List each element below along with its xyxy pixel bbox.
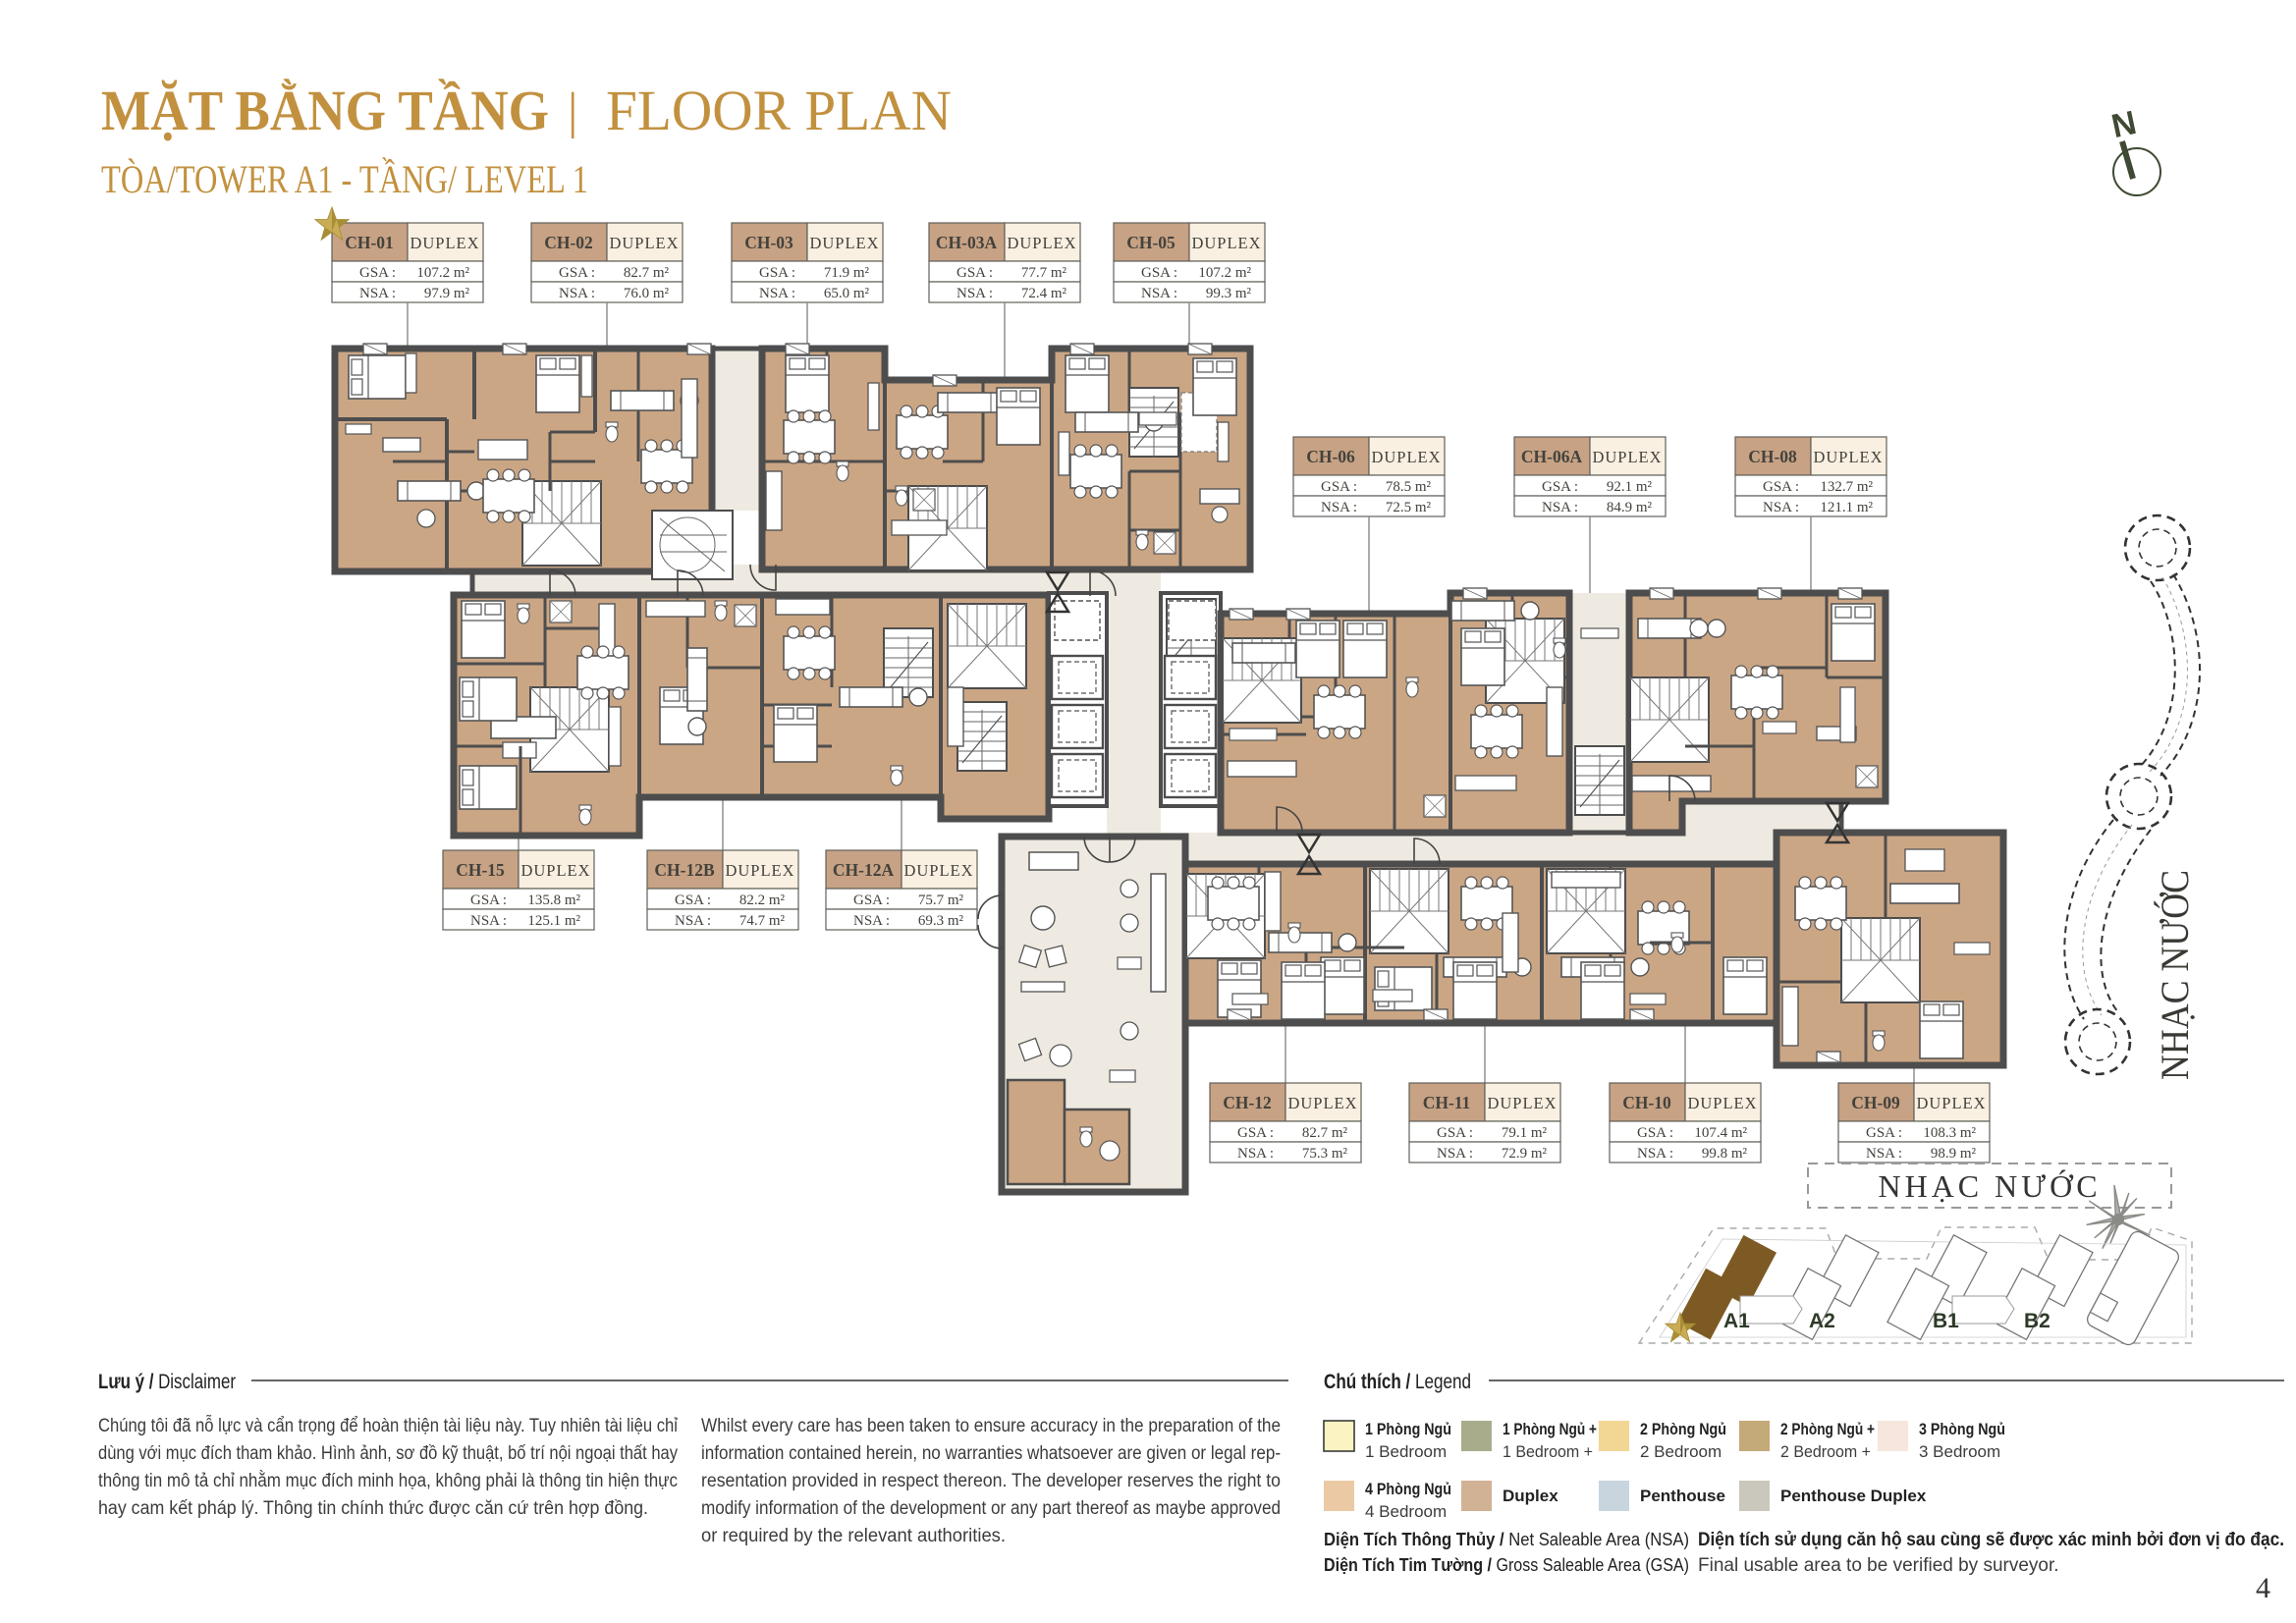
svg-text:2 Bedroom: 2 Bedroom [1640,1442,1722,1461]
svg-text:Chú thích / Legend: Chú thích / Legend [1324,1371,1471,1393]
svg-text:DUPLEX: DUPLEX [410,234,479,252]
svg-text:CH-03A: CH-03A [936,233,998,252]
svg-text:DUPLEX: DUPLEX [1813,448,1883,466]
svg-text:108.3 m²: 108.3 m² [1923,1125,1976,1141]
svg-text:4 Bedroom: 4 Bedroom [1365,1502,1447,1521]
svg-text:FLOOR PLAN: FLOOR PLAN [606,79,952,142]
svg-text:76.0 m²: 76.0 m² [624,286,670,301]
svg-text:98.9 m²: 98.9 m² [1931,1146,1977,1162]
svg-text:84.9 m²: 84.9 m² [1607,500,1653,515]
svg-text:NSA :: NSA : [559,286,595,301]
svg-text:GSA :: GSA : [1542,479,1578,495]
svg-text:Penthouse Duplex: Penthouse Duplex [1780,1487,1927,1505]
svg-text:B2: B2 [2024,1310,2050,1332]
svg-text:DUPLEX: DUPLEX [1687,1094,1757,1112]
svg-text:NSA :: NSA : [1866,1146,1902,1162]
svg-text:132.7 m²: 132.7 m² [1820,479,1873,495]
svg-text:NSA :: NSA : [470,913,507,929]
svg-text:79.1 m²: 79.1 m² [1502,1125,1548,1141]
svg-text:GSA :: GSA : [559,265,595,281]
svg-text:DUPLEX: DUPLEX [725,861,794,880]
svg-text:NSA :: NSA : [1437,1146,1473,1162]
svg-text:Final usable area to be verifi: Final usable area to be verified by surv… [1698,1555,2059,1576]
svg-text:72.5 m²: 72.5 m² [1386,500,1432,515]
svg-text:Whilst every care has been tak: Whilst every care has been taken to ensu… [701,1416,1281,1436]
svg-text:CH-10: CH-10 [1622,1093,1671,1112]
svg-text:CH-09: CH-09 [1851,1093,1900,1112]
svg-text:78.5 m²: 78.5 m² [1386,479,1432,495]
svg-text:GSA :: GSA : [1141,265,1177,281]
svg-text:GSA :: GSA : [957,265,993,281]
svg-text:NSA :: NSA : [1637,1146,1673,1162]
svg-text:CH-15: CH-15 [456,860,505,880]
svg-text:GSA :: GSA : [853,893,890,908]
svg-text:NSA :: NSA : [675,913,711,929]
svg-text:82.7 m²: 82.7 m² [1302,1125,1348,1141]
svg-text:dùng với mục đích tham khảo. H: dùng với mục đích tham khảo. Hình ảnh, s… [98,1443,678,1464]
svg-text:3 Phòng Ngủ: 3 Phòng Ngủ [1919,1420,2005,1438]
svg-text:75.3 m²: 75.3 m² [1302,1146,1348,1162]
svg-text:CH-06: CH-06 [1306,447,1355,466]
svg-text:NSA :: NSA : [1763,500,1799,515]
svg-text:Lưu ý / Disclaimer: Lưu ý / Disclaimer [98,1371,236,1393]
svg-text:NSA :: NSA : [1542,500,1578,515]
svg-text:MẶT BẰNG TẦNG: MẶT BẰNG TẦNG [101,79,549,142]
svg-text:CH-03: CH-03 [744,233,793,252]
svg-text:Penthouse: Penthouse [1640,1487,1725,1505]
svg-text:Diện Tích Tim Tường / Gross Sa: Diện Tích Tim Tường / Gross Saleable Are… [1324,1554,1689,1575]
svg-text:DUPLEX: DUPLEX [809,234,879,252]
svg-text:GSA :: GSA : [759,265,795,281]
svg-text:107.2 m²: 107.2 m² [1198,265,1251,281]
svg-text:DUPLEX: DUPLEX [609,234,679,252]
svg-text:82.2 m²: 82.2 m² [739,893,786,908]
svg-text:NSA :: NSA : [1141,286,1177,301]
svg-text:1 Phòng Ngủ +: 1 Phòng Ngủ + [1503,1420,1597,1438]
svg-text:NSA :: NSA : [1321,500,1357,515]
svg-text:99.3 m²: 99.3 m² [1206,286,1252,301]
svg-text:Diện Tích Thông Thủy / Net Sal: Diện Tích Thông Thủy / Net Saleable Area… [1324,1529,1689,1549]
svg-text:DUPLEX: DUPLEX [1287,1094,1357,1112]
svg-text:DUPLEX: DUPLEX [1371,448,1441,466]
svg-text:CH-02: CH-02 [544,233,593,252]
svg-text:121.1 m²: 121.1 m² [1820,500,1873,515]
svg-text:74.7 m²: 74.7 m² [739,913,786,929]
svg-text:NSA :: NSA : [759,286,795,301]
svg-text:DUPLEX: DUPLEX [1191,234,1261,252]
svg-text:72.9 m²: 72.9 m² [1502,1146,1548,1162]
svg-text:A1: A1 [1723,1310,1750,1332]
svg-text:DUPLEX: DUPLEX [1007,234,1076,252]
svg-text:82.7 m²: 82.7 m² [624,265,670,281]
svg-text:thông tin mô tả chỉ nhằm mục đ: thông tin mô tả chỉ nhằm mục đích minh h… [98,1470,678,1491]
svg-text:DUPLEX: DUPLEX [1592,448,1662,466]
svg-text:107.2 m²: 107.2 m² [416,265,469,281]
svg-text:77.7 m²: 77.7 m² [1021,265,1067,281]
svg-text:NSA :: NSA : [359,286,396,301]
svg-text:information contained herein,: information contained herein, no warrant… [701,1443,1281,1464]
svg-text:DUPLEX: DUPLEX [1916,1094,1986,1112]
svg-text:4: 4 [2256,1572,2270,1604]
svg-text:hay cam kết pháp lý. Thông tin: hay cam kết pháp lý. Thông tin chính thứ… [98,1498,648,1519]
svg-text:GSA :: GSA : [359,265,396,281]
svg-text:GSA :: GSA : [1866,1125,1902,1141]
svg-text:GSA :: GSA : [1637,1125,1673,1141]
svg-text:NHẠC NƯỚC: NHẠC NƯỚC [2153,870,2197,1080]
svg-text:modify information of the deve: modify information of the development or… [701,1498,1281,1519]
svg-text:GSA :: GSA : [470,893,507,908]
svg-text:GSA :: GSA : [1763,479,1799,495]
svg-text:1 Bedroom: 1 Bedroom [1365,1442,1447,1461]
svg-text:72.4 m²: 72.4 m² [1021,286,1067,301]
svg-text:Diện tích sử dụng căn hộ sau c: Diện tích sử dụng căn hộ sau cùng sẽ đượ… [1698,1530,2284,1550]
svg-text:CH-06A: CH-06A [1521,447,1583,466]
svg-text:71.9 m²: 71.9 m² [824,265,870,281]
svg-text:TÒA/TOWER A1 - TẦNG/ LEVEL 1: TÒA/TOWER A1 - TẦNG/ LEVEL 1 [101,157,588,201]
svg-text:GSA :: GSA : [675,893,711,908]
svg-text:GSA :: GSA : [1321,479,1357,495]
svg-text:Chúng tôi đã nỗ lực và cẩn trọ: Chúng tôi đã nỗ lực và cẩn trọng để hoàn… [98,1415,679,1436]
svg-text:DUPLEX: DUPLEX [1487,1094,1557,1112]
svg-text:4 Phòng Ngủ: 4 Phòng Ngủ [1365,1480,1451,1498]
svg-text:NSA :: NSA : [957,286,993,301]
svg-text:107.4 m²: 107.4 m² [1694,1125,1747,1141]
svg-text:1 Bedroom +: 1 Bedroom + [1503,1442,1593,1461]
svg-text:97.9 m²: 97.9 m² [424,286,470,301]
svg-text:125.1 m²: 125.1 m² [527,913,580,929]
svg-text:CH-11: CH-11 [1423,1093,1471,1112]
svg-text:2 Phòng Ngủ: 2 Phòng Ngủ [1640,1420,1726,1438]
svg-text:1 Phòng Ngủ: 1 Phòng Ngủ [1365,1420,1451,1438]
svg-text:CH-08: CH-08 [1748,447,1797,466]
svg-text:2 Bedroom +: 2 Bedroom + [1780,1442,1871,1461]
svg-text:B1: B1 [1933,1310,1959,1332]
svg-text:DUPLEX: DUPLEX [903,861,973,880]
svg-text:92.1 m²: 92.1 m² [1607,479,1653,495]
svg-text:NSA :: NSA : [853,913,890,929]
svg-text:GSA :: GSA : [1437,1125,1473,1141]
svg-text:resentation provided in respec: resentation provided in respect thereon.… [701,1471,1281,1491]
svg-text:CH-12A: CH-12A [833,860,895,880]
svg-text:2 Phòng Ngủ +: 2 Phòng Ngủ + [1780,1420,1875,1438]
svg-text:A2: A2 [1809,1310,1835,1332]
svg-text:or required by the relevant au: or required by the relevant authorities. [701,1526,1006,1546]
svg-text:CH-12: CH-12 [1223,1093,1272,1112]
svg-text:99.8 m²: 99.8 m² [1702,1146,1748,1162]
svg-text:3 Bedroom: 3 Bedroom [1919,1442,2000,1461]
svg-text:CH-01: CH-01 [345,233,394,252]
svg-text:135.8 m²: 135.8 m² [527,893,580,908]
svg-text:CH-05: CH-05 [1126,233,1175,252]
svg-text:NHẠC NƯỚC: NHẠC NƯỚC [1878,1168,2101,1204]
svg-text:DUPLEX: DUPLEX [520,861,590,880]
svg-text:75.7 m²: 75.7 m² [918,893,964,908]
svg-text:65.0 m²: 65.0 m² [824,286,870,301]
svg-text:NSA :: NSA : [1237,1146,1274,1162]
svg-text:69.3 m²: 69.3 m² [918,913,964,929]
svg-text:|: | [568,83,577,139]
svg-text:CH-12B: CH-12B [654,860,715,880]
svg-text:Duplex: Duplex [1503,1487,1558,1505]
svg-text:GSA :: GSA : [1237,1125,1274,1141]
